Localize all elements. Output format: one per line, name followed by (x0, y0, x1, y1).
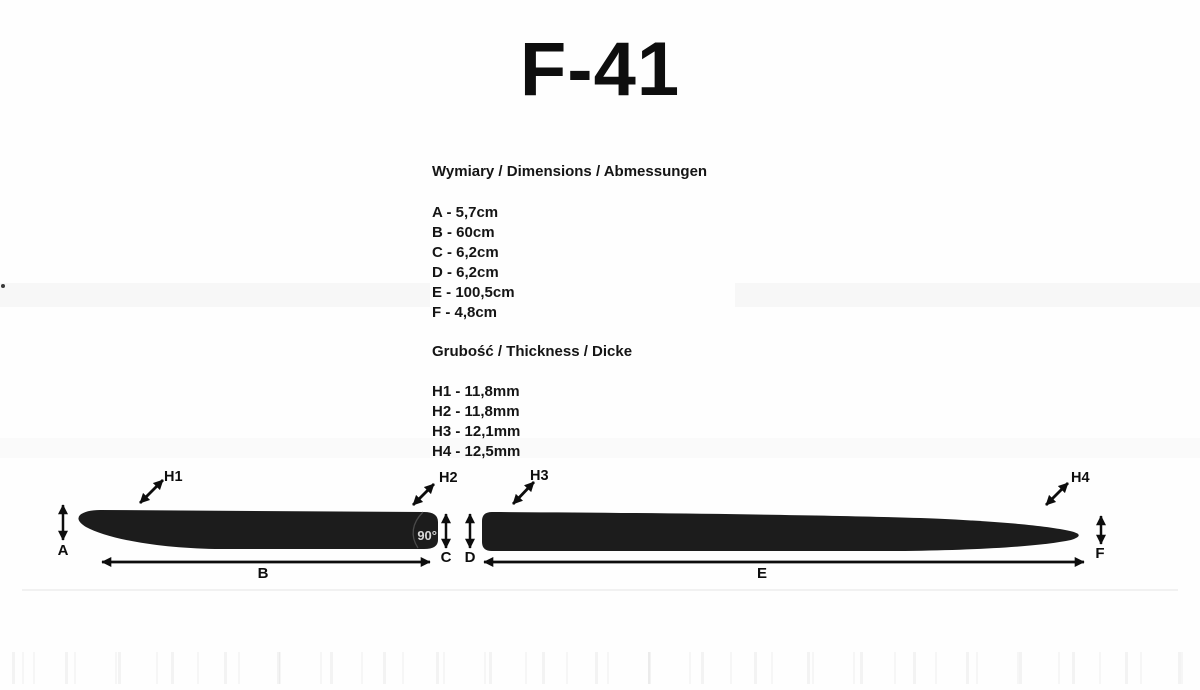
molding-diagram (0, 0, 1200, 690)
label-d: D (465, 551, 476, 565)
label-e: E (757, 567, 767, 581)
product-spec-sheet: F-41 Wymiary / Dimensions / Abmessungen … (0, 0, 1200, 690)
angle-90-label: 90° (417, 529, 437, 542)
thickness-arrow-H2 (413, 484, 434, 505)
label-b: B (258, 567, 269, 581)
label-a: A (58, 544, 69, 558)
label-h2: H2 (439, 471, 458, 485)
label-h1: H1 (164, 470, 183, 484)
label-f: F (1095, 547, 1104, 561)
right-strip-shape (482, 512, 1079, 551)
label-c: C (441, 551, 452, 565)
thickness-arrow-H4 (1046, 483, 1068, 505)
label-h4: H4 (1071, 471, 1090, 485)
label-h3: H3 (530, 469, 549, 483)
left-strip-shape (78, 510, 438, 549)
thickness-arrow-H3 (513, 482, 534, 504)
thickness-arrow-H1 (140, 480, 163, 503)
